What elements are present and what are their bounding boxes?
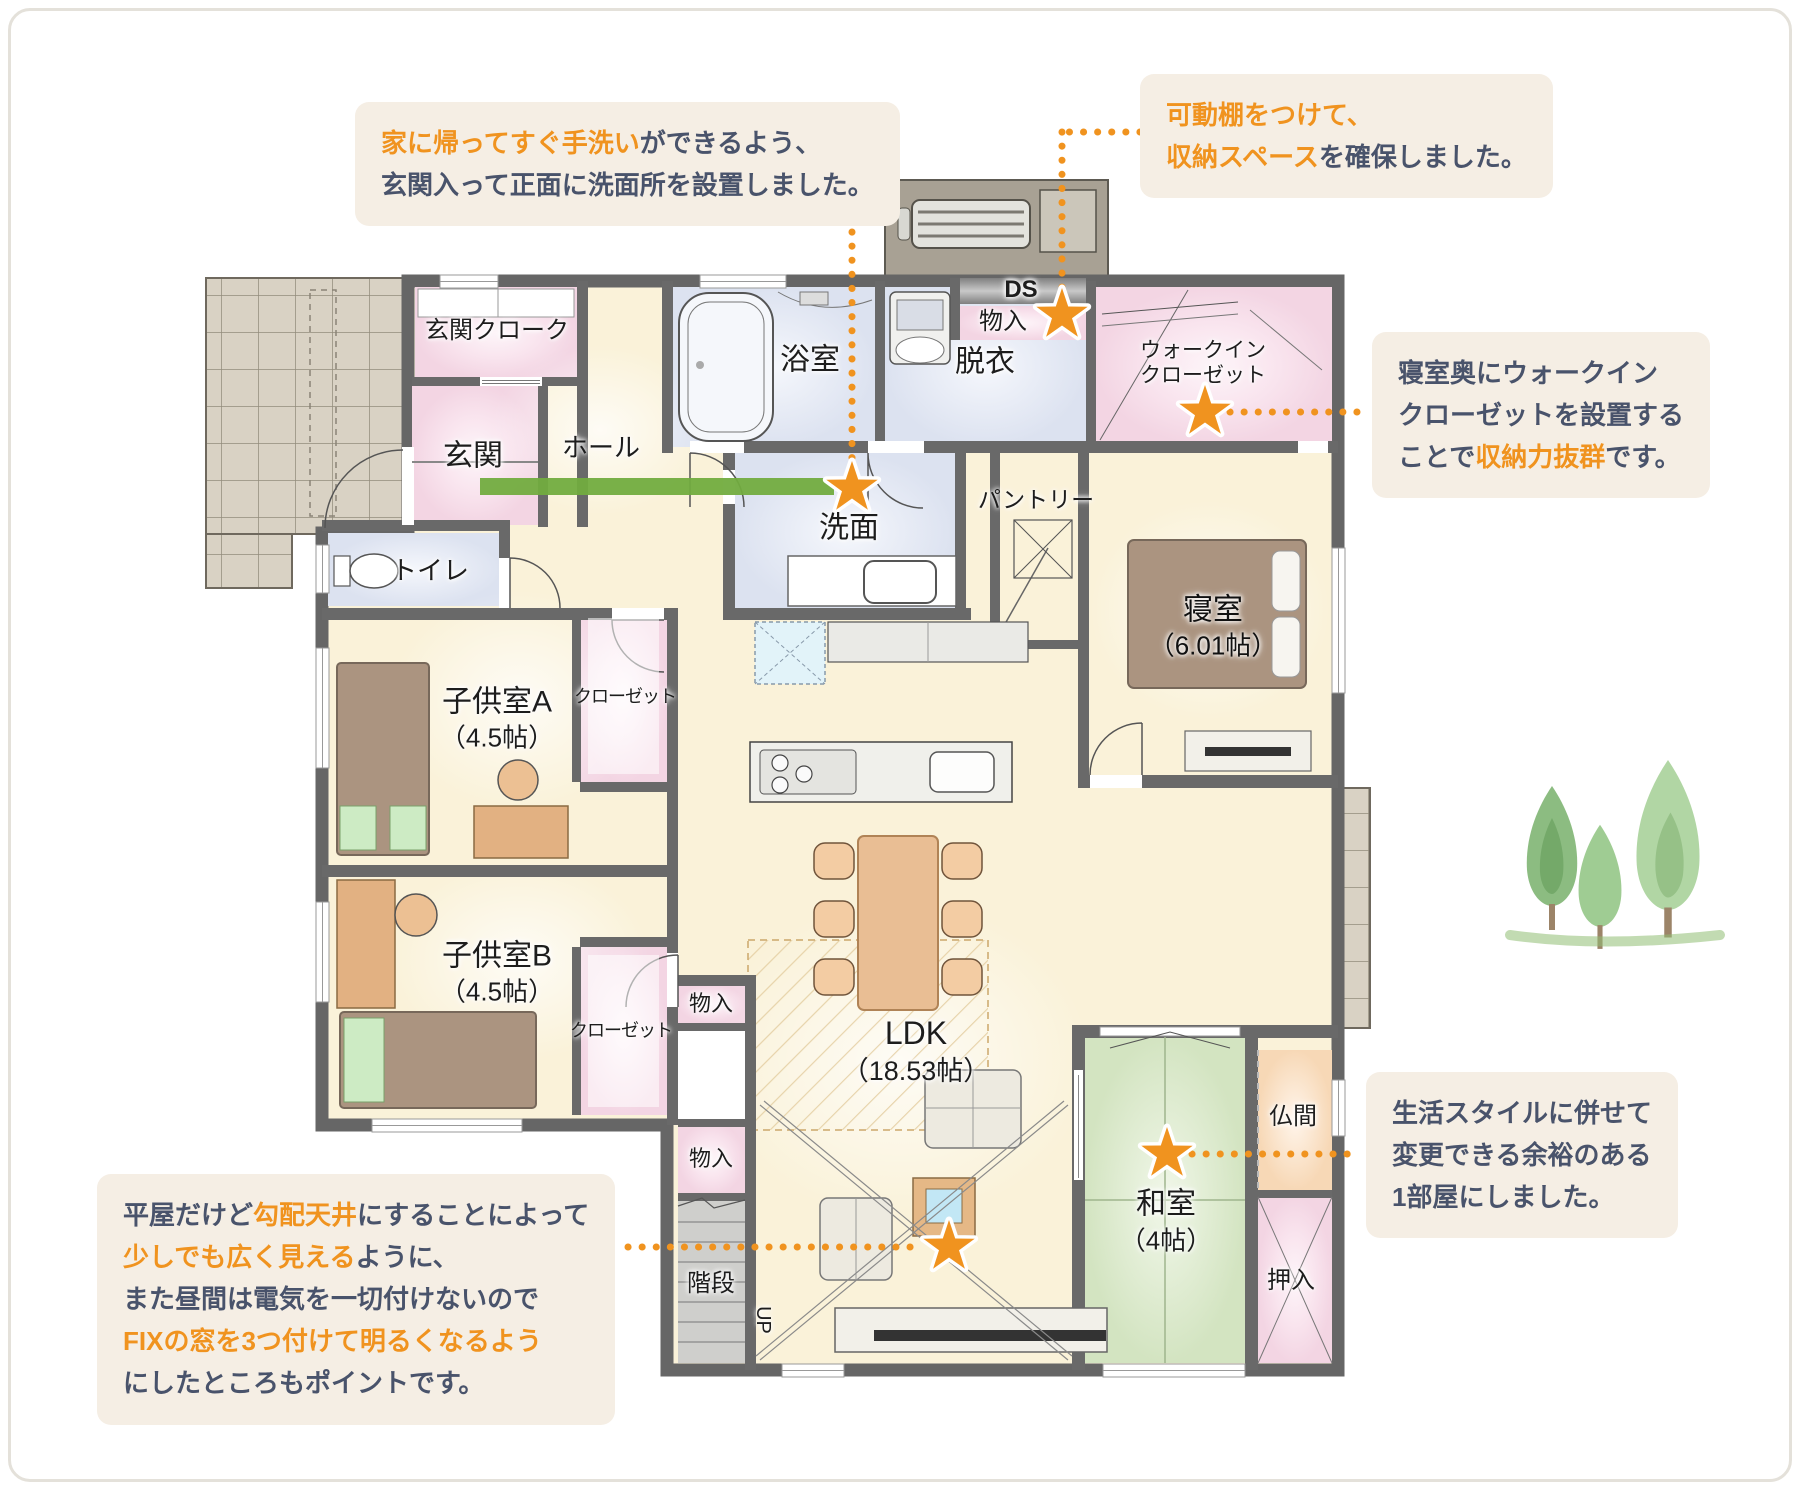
room-label-up: UP	[750, 1306, 774, 1334]
room-label-kids-a: 子供室A	[442, 684, 552, 719]
room-label-closet-a: クローゼット	[574, 686, 676, 707]
callout-text: 玄関入って正面に洗面所を設置しました。	[381, 170, 874, 200]
room-label-washitsu-size: （4帖）	[1120, 1226, 1212, 1257]
room-label-kids-b-size: （4.5帖）	[440, 977, 554, 1008]
callout-text: 平屋だけど	[123, 1200, 253, 1230]
room-label-ldk-size: （18.53帖）	[842, 1056, 991, 1088]
room-label-datsui: 脱衣	[955, 344, 1015, 379]
callout-text: 変更できる余裕のある	[1392, 1140, 1651, 1170]
room-label-bedroom-size: （6.01帖）	[1149, 631, 1278, 662]
room-label-senmen: 洗面	[819, 510, 879, 545]
callout-text: 1部屋にしました。	[1392, 1182, 1614, 1212]
room-label-mono-top: 物入	[979, 308, 1027, 336]
room-label-stairs: 階段	[687, 1270, 735, 1298]
room-label-bedroom: 寝室	[1183, 592, 1243, 627]
callout-highlight-text: FIXの窓を3つ付けて明るくなるよう	[123, 1326, 542, 1356]
room-label-ds: DS	[1004, 276, 1037, 304]
callout-movable-shelf: 可動棚をつけて、収納スペースを確保しました。	[1140, 74, 1553, 198]
callout-text: にしたところもポイントです。	[123, 1368, 484, 1398]
callout-wic: 寝室奥にウォークインクローゼットを設置することで収納力抜群です。	[1372, 332, 1710, 498]
room-label-pantry: パントリー	[978, 486, 1094, 513]
wic-line-2: クローゼット	[1140, 364, 1266, 387]
room-label-genkan: 玄関	[443, 438, 503, 473]
equipment-zone	[885, 180, 1108, 280]
room-label-mono-low: 物入	[689, 1146, 733, 1172]
callout-text: ができるよう、	[640, 128, 821, 158]
room-label-toilet: トイレ	[391, 556, 469, 587]
room-label-ldk: LDK	[885, 1015, 947, 1053]
floor-plan-page: 玄関クローク 玄関 ホール トイレ 浴室 脱衣 DS 物入 ウォークインクローゼ…	[0, 0, 1800, 1490]
wic-line-1: ウォークイン	[1140, 339, 1266, 362]
callout-text: にすることによって	[357, 1200, 589, 1230]
callout-text: 寝室奥にウォークイン	[1398, 358, 1658, 388]
callout-text: ように、	[355, 1242, 458, 1272]
room-label-closet-b: クローゼット	[570, 1020, 672, 1041]
callout-text: です。	[1605, 442, 1680, 472]
callout-text: ことで	[1398, 442, 1475, 472]
room-label-kids-b: 子供室B	[442, 938, 552, 973]
callout-highlight-text: 可動棚をつけて、	[1166, 100, 1373, 130]
callout-text: また昼間は電気を一切付けないので	[123, 1284, 539, 1314]
entry-flow-arrow	[480, 478, 834, 495]
callout-wash-entry: 家に帰ってすぐ手洗いができるよう、玄関入って正面に洗面所を設置しました。	[355, 102, 900, 226]
callout-text: を確保しました。	[1319, 142, 1527, 172]
callout-ceiling: 平屋だけど勾配天井にすることによって少しでも広く見えるように、また昼間は電気を一…	[97, 1174, 615, 1425]
room-label-mono-mid: 物入	[689, 991, 733, 1017]
callout-washitsu-flex: 生活スタイルに併せて変更できる余裕のある1部屋にしました。	[1366, 1072, 1678, 1238]
callout-highlight-text: 収納力抜群	[1475, 442, 1605, 472]
callout-highlight-text: 少しでも広く見える	[123, 1242, 355, 1272]
room-label-kids-a-size: （4.5帖）	[440, 723, 554, 754]
trees-illustration	[1510, 760, 1720, 949]
room-label-butsuma: 仏間	[1269, 1103, 1317, 1131]
callout-highlight-text: 勾配天井	[253, 1200, 357, 1230]
room-label-washitsu: 和室	[1136, 1186, 1196, 1221]
room-label-wic: ウォークインクローゼット	[1140, 339, 1266, 389]
callout-highlight-text: 収納スペース	[1166, 142, 1319, 172]
room-label-bath: 浴室	[780, 342, 840, 377]
callout-text: 生活スタイルに併せて	[1392, 1098, 1652, 1128]
room-label-oshiire: 押入	[1267, 1267, 1315, 1295]
callout-text: クローゼットを設置する	[1398, 400, 1684, 430]
room-label-genkan-cloak: 玄関クローク	[425, 317, 569, 345]
callout-highlight-text: 家に帰ってすぐ手洗い	[381, 128, 640, 158]
room-label-hall: ホール	[562, 433, 640, 464]
